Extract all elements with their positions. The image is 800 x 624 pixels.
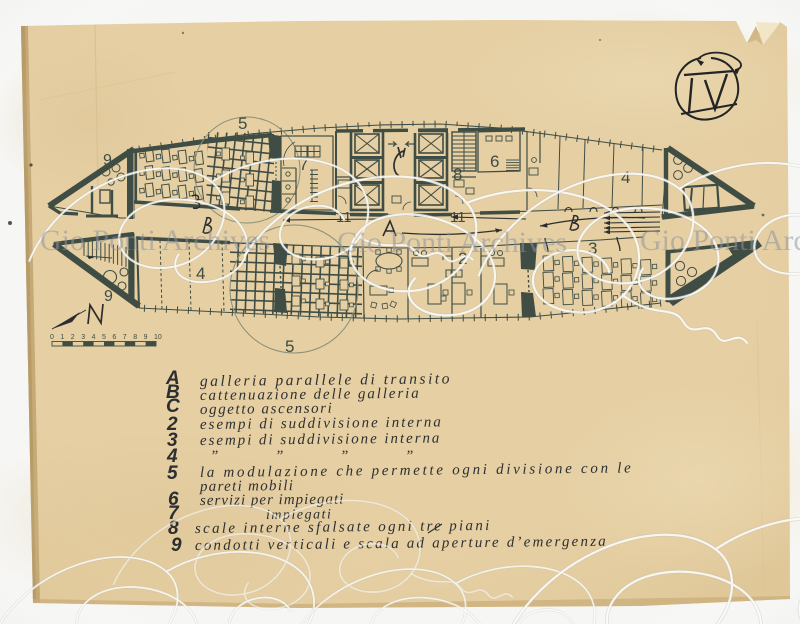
- svg-text:10: 10: [154, 334, 162, 341]
- svg-text:7: 7: [123, 334, 127, 341]
- svg-text:8: 8: [453, 165, 462, 184]
- svg-text:Gio Ponti Archives: Gio Ponti Archives: [40, 224, 270, 257]
- svg-text:9: 9: [171, 535, 182, 556]
- svg-text:5: 5: [285, 337, 294, 356]
- svg-text:4: 4: [92, 334, 96, 341]
- svg-text:Gio Ponti Archives: Gio Ponti Archives: [337, 226, 567, 259]
- svg-text:”: ”: [210, 448, 218, 464]
- svg-text:0: 0: [50, 334, 54, 341]
- svg-text:esempi di suddivisione interna: esempi di suddivisione interna: [200, 430, 442, 449]
- svg-text:9: 9: [103, 152, 112, 169]
- svg-text:”: ”: [275, 448, 283, 464]
- svg-text:Gio Ponti Archives: Gio Ponti Archives: [640, 224, 800, 257]
- svg-text:6: 6: [490, 152, 499, 171]
- svg-text:”: ”: [405, 448, 413, 464]
- svg-text:8: 8: [133, 334, 137, 341]
- svg-text:3: 3: [81, 334, 85, 341]
- svg-text:2: 2: [71, 334, 75, 341]
- svg-text:”: ”: [340, 448, 348, 464]
- svg-text:4: 4: [196, 264, 205, 283]
- svg-text:9: 9: [104, 288, 113, 305]
- svg-text:1: 1: [60, 334, 64, 341]
- svg-text:9: 9: [144, 334, 148, 341]
- svg-text:6: 6: [112, 334, 116, 341]
- svg-text:5: 5: [238, 114, 247, 133]
- svg-text:5: 5: [167, 463, 178, 484]
- svg-text:4: 4: [621, 168, 630, 187]
- svg-text:5: 5: [102, 334, 106, 341]
